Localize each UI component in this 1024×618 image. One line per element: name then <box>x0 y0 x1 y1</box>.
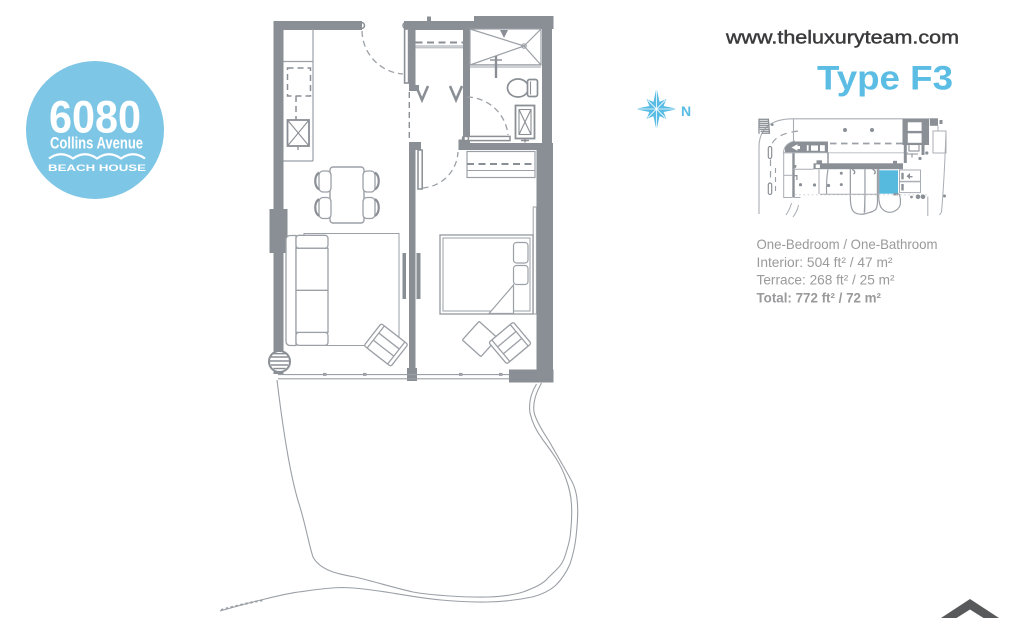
svg-text:One-Bedroom / One-Bathroom: One-Bedroom / One-Bathroom <box>757 237 938 252</box>
svg-text:Type F3: Type F3 <box>817 60 953 98</box>
svg-text:Collins Avenue: Collins Avenue <box>50 135 143 153</box>
svg-text:BEACH HOUSE: BEACH HOUSE <box>48 163 146 173</box>
svg-text:Interior: 504 ft² / 47 m²: Interior: 504 ft² / 47 m² <box>757 255 893 270</box>
svg-text:N: N <box>681 103 691 119</box>
svg-text:Terrace: 268 ft² / 25 m²: Terrace: 268 ft² / 25 m² <box>757 273 895 288</box>
svg-text:Total: 772 ft² / 72 m²: Total: 772 ft² / 72 m² <box>757 290 882 305</box>
svg-text:www.theluxuryteam.com: www.theluxuryteam.com <box>725 27 959 48</box>
